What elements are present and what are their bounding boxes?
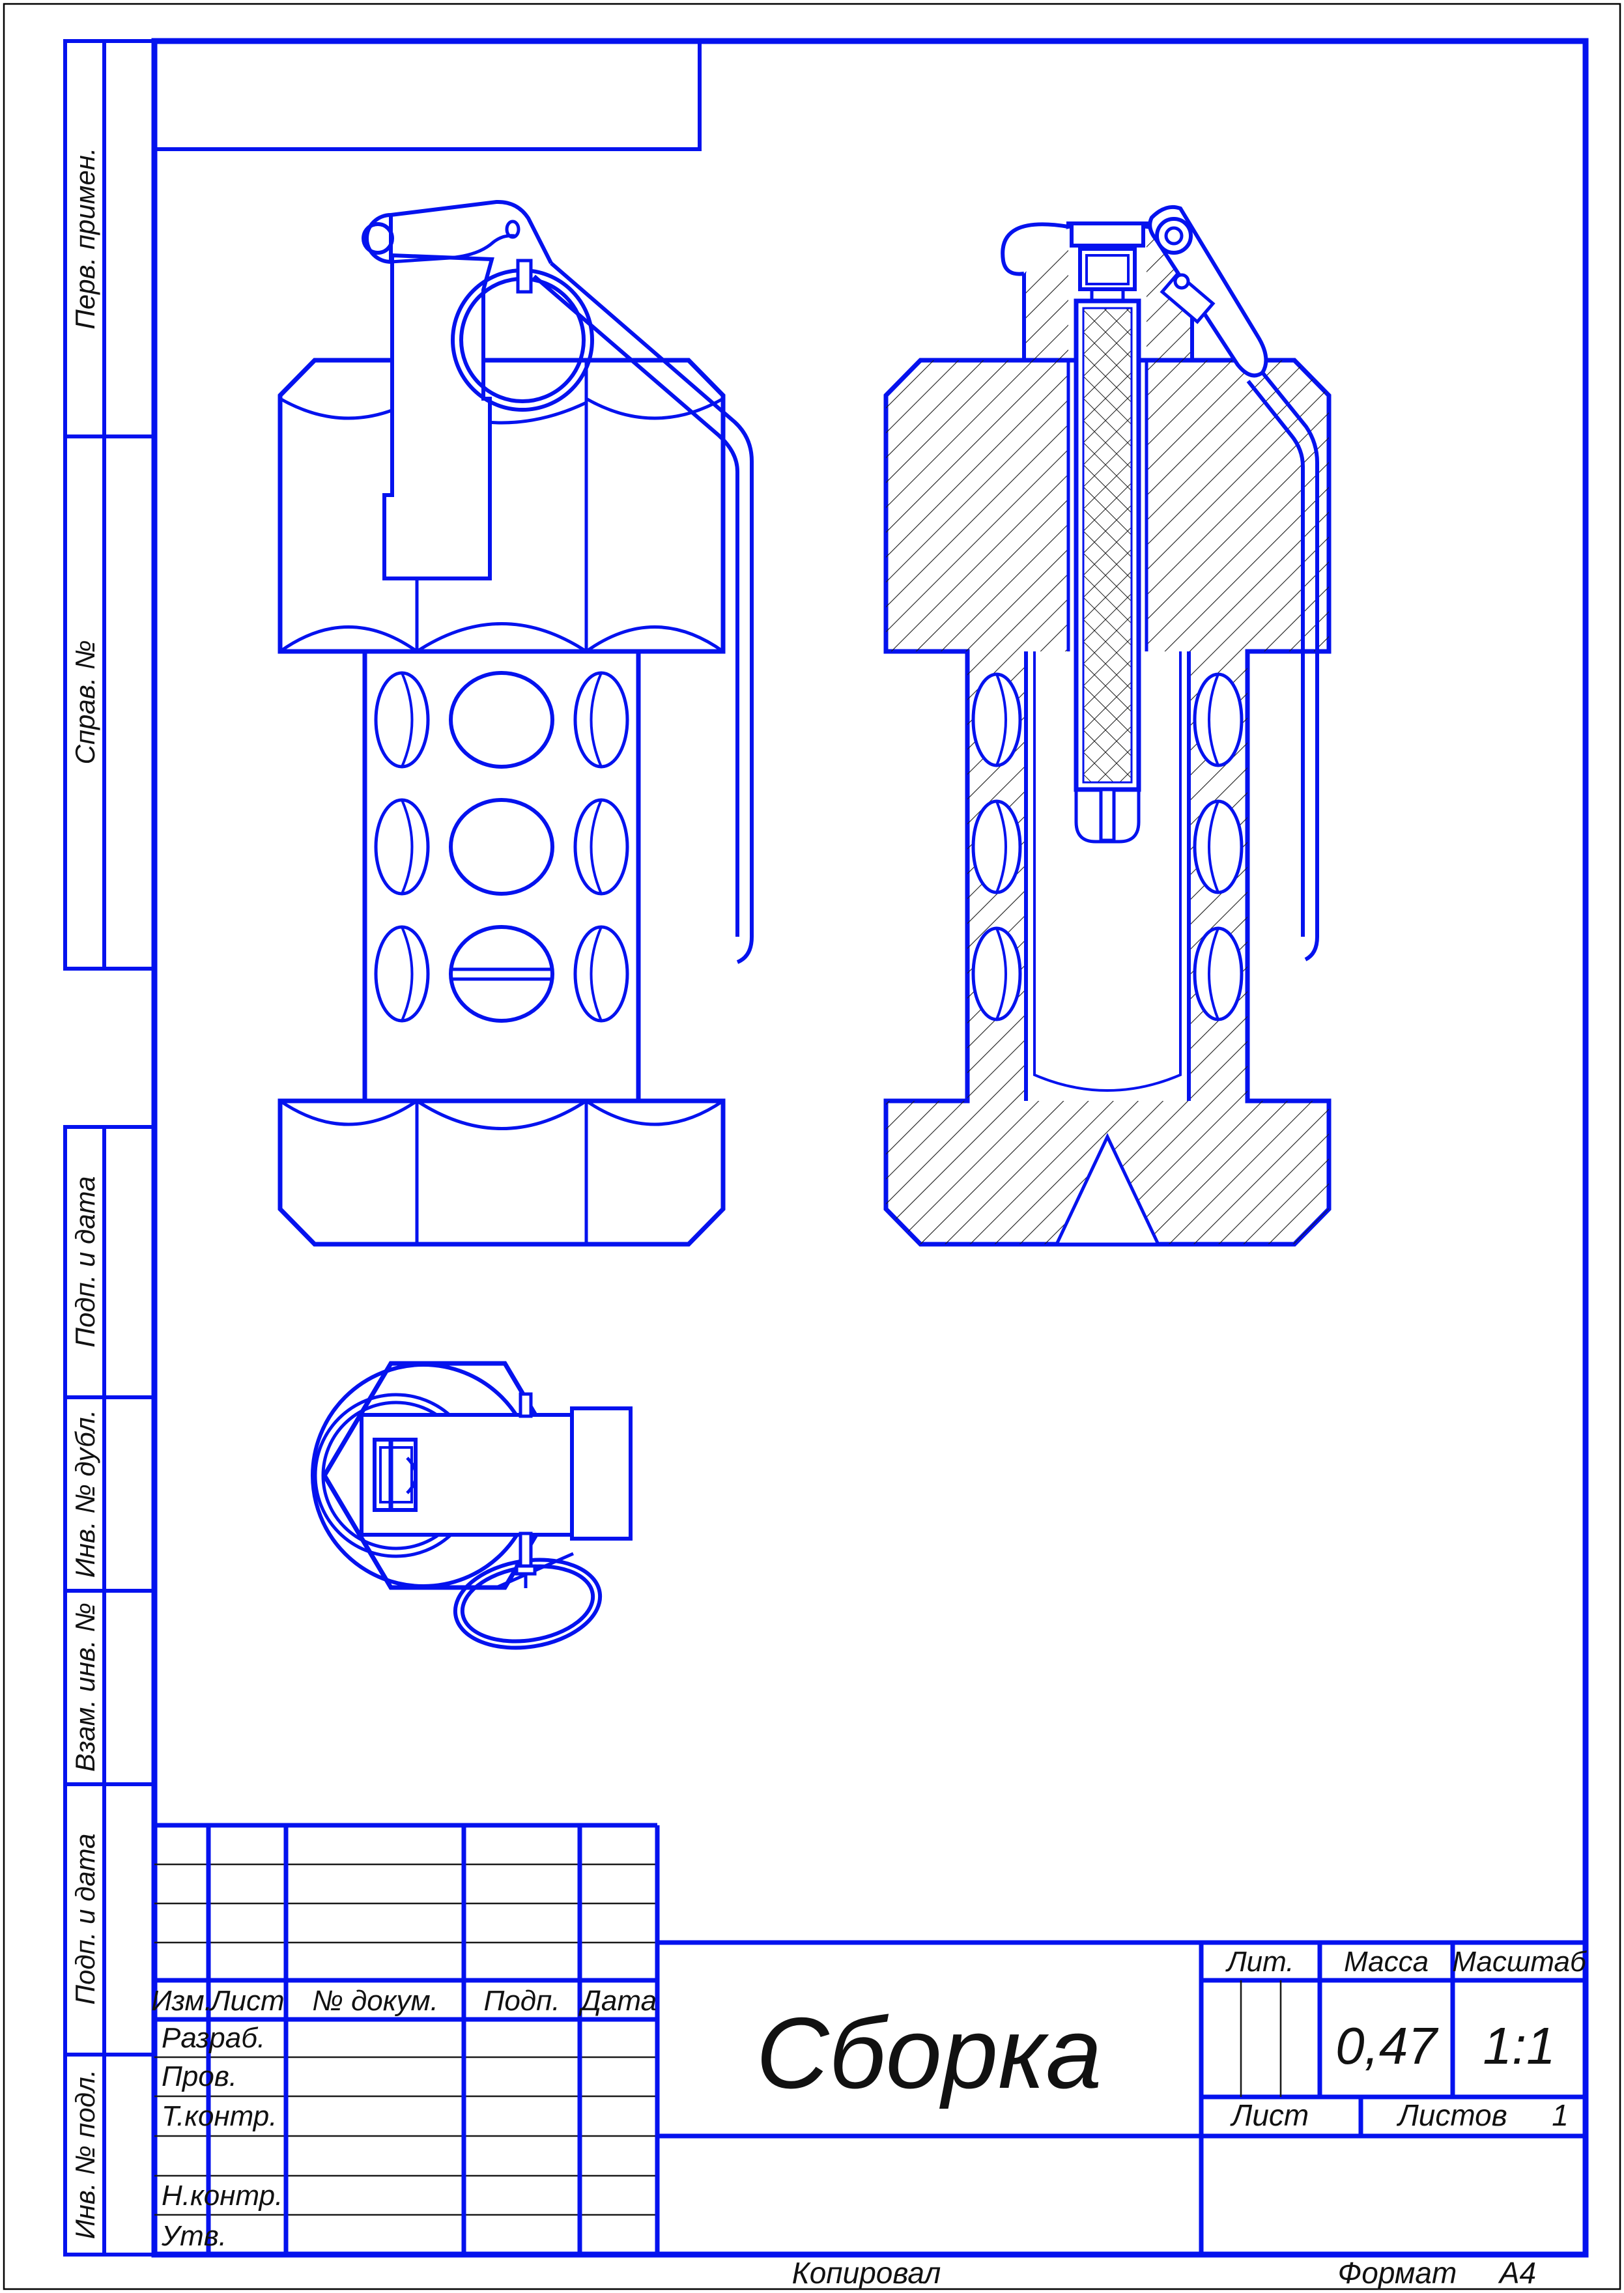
front-top-cap	[280, 360, 723, 651]
lit-label: Лит.	[1225, 1946, 1294, 1978]
margin-label-podp-i-data-upper: Подп. и дата	[70, 1176, 100, 1348]
front-safety-pin	[518, 261, 531, 292]
margin-box-podp-i-data-upper: Подп. и дата	[65, 1127, 154, 1397]
margin-box-podp-i-data-lower: Подп. и дата	[65, 1784, 154, 2055]
header-doc-no: № докум.	[312, 1985, 438, 2017]
top-safety-pin-upper	[520, 1394, 531, 1416]
row-prov: Пров.	[162, 2060, 237, 2092]
front-bottom-cap	[280, 1101, 723, 1244]
scale-value: 1:1	[1483, 2017, 1555, 2075]
header-list: Лист	[208, 1985, 284, 2017]
margin-box-inv-no-podl: Инв. № подл.	[65, 2055, 154, 2255]
sheets-value: 1	[1552, 2098, 1569, 2132]
front-fuze-body	[384, 255, 492, 578]
margin-label-inv-no-dubl: Инв. № дубл.	[70, 1410, 100, 1578]
header-izm: Изм.	[151, 1985, 212, 2017]
margin-label-podp-i-data-lower: Подп. и дата	[70, 1834, 100, 2005]
sheets-label: Листов	[1396, 2098, 1507, 2132]
row-utv: Утв.	[161, 2220, 227, 2252]
margin-box-vzam-inv-no: Взам. инв. №	[65, 1591, 154, 1784]
row-n-kontr: Н.контр.	[162, 2180, 283, 2212]
section-hinge-outer	[1157, 219, 1191, 253]
margin-label-inv-no-podl: Инв. № подл.	[70, 2070, 100, 2240]
footer-strip: Копировал Формат А4	[792, 2256, 1537, 2290]
section-fuze-cap	[1072, 223, 1143, 246]
scale-label: Масштаб	[1452, 1946, 1588, 1978]
sheet-label: Лист	[1230, 2098, 1309, 2132]
header-podp: Подп.	[483, 1985, 560, 2017]
format-value: А4	[1498, 2256, 1536, 2290]
drawing-sheet: Перв. примен. Справ. № Подп. и дата Инв.…	[0, 0, 1624, 2293]
designation-box	[154, 41, 700, 149]
top-clip-inner	[380, 1447, 412, 1502]
margin-box-inv-no-dubl: Инв. № дубл.	[65, 1397, 154, 1591]
front-vent-holes	[376, 673, 627, 1021]
row-t-kontr: Т.контр.	[162, 2100, 278, 2132]
top-lever-end	[572, 1408, 631, 1539]
grenade-section-view	[886, 207, 1329, 1244]
change-table-header: Изм. Лист № докум. Подп. Дата	[151, 1985, 657, 2017]
margin-label-perv-primen: Перв. примен.	[70, 147, 100, 329]
mass-value: 0,47	[1335, 2017, 1438, 2075]
left-margin-columns: Перв. примен. Справ. № Подп. и дата Инв.…	[65, 41, 154, 2255]
header-data: Дата	[578, 1985, 657, 2017]
gost-drawing-canvas: Перв. примен. Справ. № Подп. и дата Инв.…	[0, 0, 1624, 2293]
grenade-front-view	[280, 202, 752, 1244]
mass-label: Масса	[1344, 1946, 1429, 1978]
document-title: Сборка	[756, 1997, 1102, 2109]
copied-label: Копировал	[792, 2256, 941, 2290]
front-lever-end-cap	[367, 215, 391, 262]
margin-label-sprav-no: Справ. №	[70, 640, 100, 765]
row-razrab: Разраб.	[162, 2022, 265, 2054]
grenade-top-view	[313, 1363, 631, 1658]
margin-box-perv-primen: Перв. примен.	[65, 41, 154, 436]
margin-box-sprav-no: Справ. №	[65, 436, 154, 969]
title-block: Изм. Лист № докум. Подп. Дата Разраб. Пр…	[151, 1825, 1588, 2255]
format-label: Формат	[1338, 2256, 1457, 2290]
margin-label-vzam-inv-no: Взам. инв. №	[70, 1602, 100, 1772]
